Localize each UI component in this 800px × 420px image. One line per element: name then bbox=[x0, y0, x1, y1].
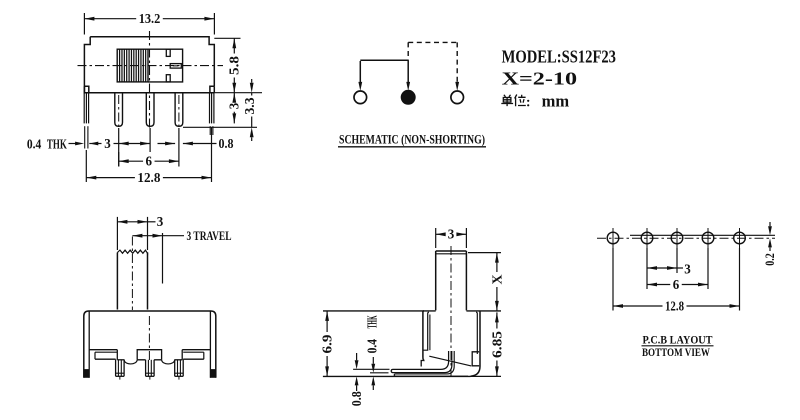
svg-text:0.2: 0.2 bbox=[763, 253, 777, 266]
svg-text:12.8: 12.8 bbox=[137, 170, 160, 185]
svg-text:6: 6 bbox=[146, 154, 153, 169]
svg-text:13.2: 13.2 bbox=[139, 11, 161, 26]
svg-text:6.9: 6.9 bbox=[320, 334, 335, 353]
svg-text:6: 6 bbox=[673, 277, 680, 292]
svg-text:12.8: 12.8 bbox=[665, 298, 684, 313]
svg-text:BOTTOM VIEW: BOTTOM VIEW bbox=[642, 347, 710, 359]
svg-text:THK: THK bbox=[47, 136, 67, 151]
svg-text:0.4: 0.4 bbox=[27, 136, 42, 151]
svg-text:X: X bbox=[489, 274, 504, 284]
svg-text:mm: mm bbox=[542, 91, 570, 110]
svg-text:3.3: 3.3 bbox=[242, 97, 257, 114]
svg-text:3: 3 bbox=[104, 136, 111, 151]
svg-text:3 TRAVEL: 3 TRAVEL bbox=[187, 229, 232, 243]
svg-text:5.8: 5.8 bbox=[227, 56, 242, 75]
svg-text:0.8: 0.8 bbox=[349, 391, 364, 406]
svg-text:0.4: 0.4 bbox=[364, 339, 379, 354]
svg-text:3: 3 bbox=[448, 227, 455, 242]
svg-text:3: 3 bbox=[684, 262, 691, 277]
svg-text:SCHEMATIC (NON-SHORTING): SCHEMATIC (NON-SHORTING) bbox=[339, 132, 485, 146]
svg-text:3: 3 bbox=[227, 103, 242, 110]
svg-text:MODEL:SS12F23: MODEL:SS12F23 bbox=[502, 46, 617, 66]
svg-text:3: 3 bbox=[157, 214, 164, 229]
svg-text:0.8: 0.8 bbox=[219, 136, 234, 151]
svg-text:6.85: 6.85 bbox=[489, 331, 504, 358]
svg-text:X=2-10: X=2-10 bbox=[502, 68, 578, 88]
svg-text:P.C.B LAYOUT: P.C.B LAYOUT bbox=[643, 334, 713, 346]
svg-text:THK: THK bbox=[364, 315, 379, 328]
